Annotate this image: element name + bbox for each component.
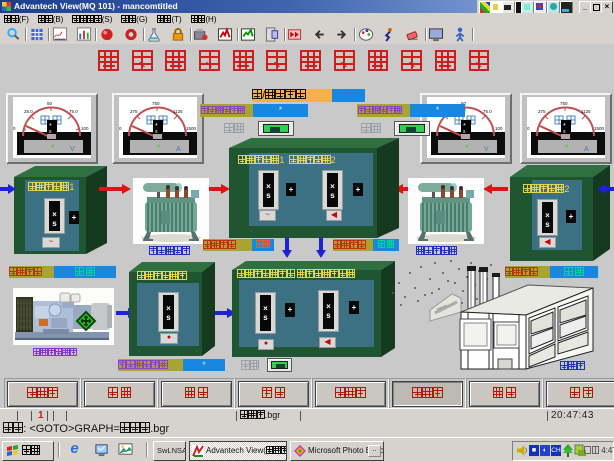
svg-text:1500: 1500 bbox=[186, 126, 197, 131]
svg-text:100: 100 bbox=[81, 126, 89, 131]
svg-text:A: A bbox=[584, 146, 589, 153]
svg-text:A: A bbox=[176, 146, 181, 153]
svg-text:1125: 1125 bbox=[173, 109, 183, 114]
svg-text:750: 750 bbox=[152, 101, 160, 106]
svg-text:375: 375 bbox=[538, 109, 546, 114]
svg-text:*: * bbox=[465, 143, 469, 153]
svg-text:V: V bbox=[70, 146, 75, 153]
svg-text:75.0: 75.0 bbox=[483, 109, 492, 114]
svg-text:100: 100 bbox=[495, 126, 503, 131]
svg-text:1125: 1125 bbox=[581, 109, 591, 114]
svg-text:75.0: 75.0 bbox=[69, 109, 78, 114]
svg-text:*: * bbox=[157, 143, 161, 153]
svg-text:25.0: 25.0 bbox=[24, 109, 33, 114]
svg-text:375: 375 bbox=[130, 109, 138, 114]
svg-text:1500: 1500 bbox=[594, 126, 605, 131]
svg-text:750: 750 bbox=[560, 101, 568, 106]
svg-text:*: * bbox=[51, 143, 55, 153]
svg-text:50: 50 bbox=[47, 101, 53, 106]
svg-text:*: * bbox=[565, 143, 569, 153]
svg-text:V: V bbox=[484, 146, 489, 153]
